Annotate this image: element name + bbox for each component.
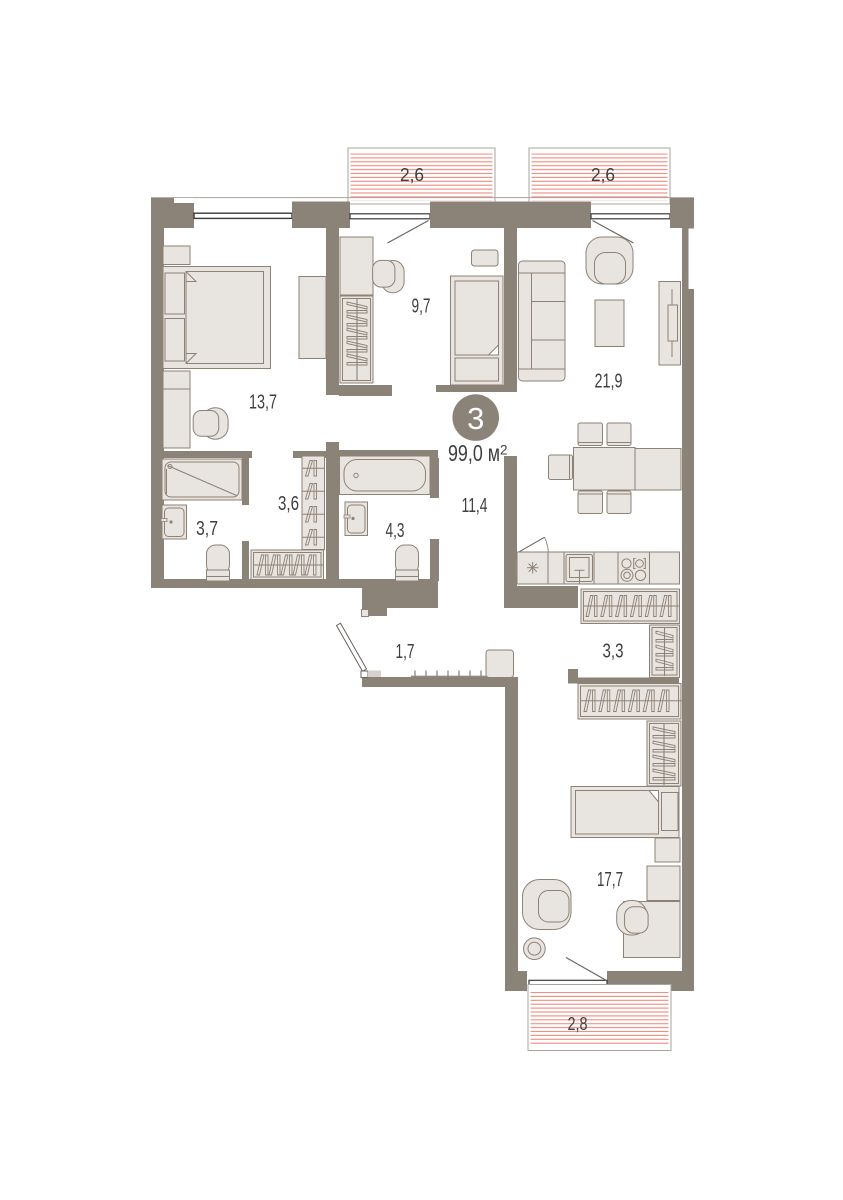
svg-text:3,7: 3,7	[196, 517, 218, 540]
svg-text:11,4: 11,4	[462, 494, 488, 517]
svg-text:21,9: 21,9	[595, 370, 623, 393]
svg-text:4,3: 4,3	[386, 519, 405, 542]
svg-text:2,8: 2,8	[568, 1013, 588, 1034]
svg-text:17,7: 17,7	[597, 868, 623, 891]
svg-text:2: 2	[500, 443, 508, 458]
svg-text:1,7: 1,7	[396, 640, 415, 663]
svg-text:9,7: 9,7	[412, 295, 431, 318]
svg-text:99,0 м: 99,0 м	[448, 440, 500, 466]
svg-text:2,6: 2,6	[400, 164, 424, 185]
svg-text:3,3: 3,3	[603, 640, 624, 663]
svg-text:3,6: 3,6	[278, 492, 299, 515]
svg-text:3: 3	[467, 401, 484, 436]
svg-text:2,6: 2,6	[591, 164, 615, 185]
svg-text:13,7: 13,7	[249, 391, 277, 414]
